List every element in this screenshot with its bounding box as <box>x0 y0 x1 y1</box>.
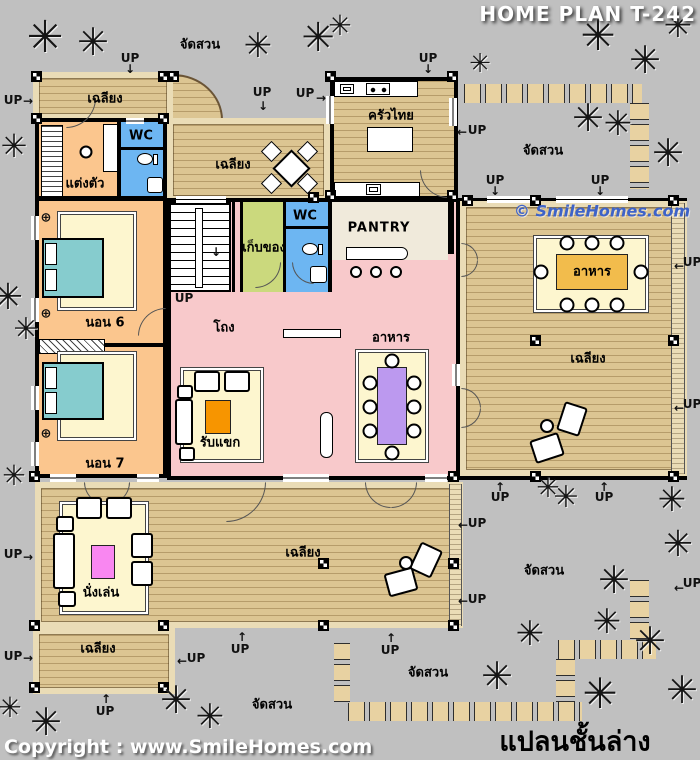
tree-icon: ✳ <box>553 483 578 513</box>
up-label: UP <box>4 649 23 663</box>
garden-label: จัดสวน <box>252 694 292 715</box>
up-label-stairs: UP <box>175 291 194 305</box>
up-label: UP <box>468 123 487 137</box>
tree-icon: ✳ <box>196 700 225 734</box>
up-arrow-icon: ← <box>458 519 468 531</box>
armchair <box>224 371 250 392</box>
dining-chair <box>407 400 422 415</box>
pantry-bar-counter <box>346 247 408 260</box>
up-label: UP <box>468 592 487 606</box>
window <box>452 364 460 386</box>
living-label: รับแขก <box>200 432 240 453</box>
tree-icon: ✳ <box>629 41 661 79</box>
paver-path-bottom <box>348 702 582 721</box>
tree-icon: ✳ <box>244 29 273 63</box>
paver-path-bottom-left <box>334 643 350 703</box>
column <box>29 620 40 631</box>
dining-chair <box>560 236 575 251</box>
bed-6-pillow <box>45 269 57 291</box>
window <box>283 474 329 482</box>
column <box>530 335 541 346</box>
tree-icon: ✳ <box>481 657 513 695</box>
column <box>325 71 336 82</box>
up-label: UP <box>96 704 115 718</box>
column <box>448 471 459 482</box>
ac-unit-icon: ⊕ <box>41 308 52 321</box>
up-arrow-icon: ↑ <box>495 481 505 493</box>
tree-icon: ✳ <box>634 622 666 660</box>
wall-stairs-right <box>232 202 235 292</box>
up-arrow-icon: ← <box>674 260 684 272</box>
up-label: UP <box>253 85 272 99</box>
tree-icon: ✳ <box>2 462 25 490</box>
bar-stool <box>370 266 382 278</box>
sofa-corner <box>179 447 195 461</box>
ac-unit-icon: ⊕ <box>41 212 52 225</box>
tree-icon: ✳ <box>469 51 491 77</box>
plan-title: HOME PLAN T-242 <box>479 2 696 26</box>
tree-icon: ✳ <box>572 99 604 137</box>
up-arrow-icon: → <box>23 551 33 563</box>
up-arrow-icon: ← <box>458 595 468 607</box>
stair-arrow-icon: ↓ <box>211 246 221 258</box>
tree-icon: ✳ <box>582 673 617 715</box>
garden-label: จัดสวน <box>180 34 220 55</box>
hall-pillar <box>320 412 333 458</box>
up-arrow-icon: ↑ <box>237 631 247 643</box>
watermark: © SmileHomes.com <box>514 202 690 221</box>
dining-chair <box>610 236 625 251</box>
dining-chair <box>634 265 649 280</box>
up-arrow-icon: ↓ <box>595 185 605 197</box>
toilet <box>302 243 318 255</box>
up-arrow-icon: ↓ <box>423 63 433 75</box>
kitchen-sink-icon <box>340 84 354 94</box>
column <box>447 190 458 201</box>
tree-icon: ✳ <box>27 16 64 60</box>
window <box>176 196 226 203</box>
bed-7-pillow <box>45 392 57 414</box>
up-arrow-icon: ← <box>177 655 187 667</box>
tree-icon: ✳ <box>0 694 22 722</box>
wall-pantry-right <box>448 202 454 254</box>
sofa-corner <box>177 385 193 399</box>
dining-chair <box>407 376 422 391</box>
column <box>448 558 459 569</box>
wall-dressing-bottom <box>35 196 167 201</box>
up-label: UP <box>381 643 400 657</box>
tree-icon: ✳ <box>516 617 545 651</box>
dining-chair <box>610 298 625 313</box>
tree-icon: ✳ <box>13 315 38 345</box>
up-arrow-icon: ← <box>674 582 684 594</box>
dining-outdoor-label: อาหาร <box>573 261 611 282</box>
toilet-tank <box>318 244 323 255</box>
up-arrow-icon: ↓ <box>125 63 135 75</box>
garden-label: จัดสวน <box>523 140 563 161</box>
porch-curve-corner <box>173 74 223 120</box>
column <box>318 620 329 631</box>
dressing-closet <box>41 125 63 197</box>
column <box>158 620 169 631</box>
pantry-label: PANTRY <box>348 221 411 236</box>
armchair <box>131 533 153 558</box>
deck-side-table <box>399 556 413 570</box>
window <box>31 216 39 240</box>
floor-plan-canvas: ↓ ⊕ <box>0 0 700 760</box>
bedroom6-label: นอน 6 <box>85 312 124 333</box>
dining-chair <box>585 236 600 251</box>
paver-path-top <box>464 84 642 103</box>
kitchen-island <box>367 127 413 152</box>
up-arrow-icon: ↑ <box>599 481 609 493</box>
tree-icon: ✳ <box>663 527 693 563</box>
porch-label: เฉลียง <box>215 154 250 175</box>
dining-indoor-label: อาหาร <box>372 327 410 348</box>
deck-side-table <box>540 419 554 433</box>
up-arrow-icon: → <box>316 92 326 104</box>
toilet <box>137 153 153 165</box>
up-label: UP <box>187 651 206 665</box>
ac-unit-icon: ⊕ <box>41 428 52 441</box>
tree-icon: ✳ <box>652 134 684 172</box>
window <box>425 474 447 482</box>
up-label: UP <box>231 642 250 656</box>
dining-chair <box>585 298 600 313</box>
dining-chair <box>363 424 378 439</box>
vanity-stool <box>80 146 93 159</box>
kitchen-label: ครัวไทย <box>368 105 414 126</box>
dressing-label: แต่งตัว <box>66 173 105 194</box>
up-arrow-icon: ↓ <box>258 100 268 112</box>
window <box>31 386 39 410</box>
column <box>448 620 459 631</box>
dining-chair <box>363 376 378 391</box>
column <box>308 192 319 203</box>
dining-chair <box>534 265 549 280</box>
tree-icon: ✳ <box>666 671 698 709</box>
column <box>325 190 336 201</box>
paver-path-right-3 <box>556 659 575 703</box>
bar-stool <box>350 266 362 278</box>
dining-chair <box>385 354 400 369</box>
bedroom7-label: นอน 7 <box>85 453 124 474</box>
sitting-label: นั่งเล่น <box>83 582 120 603</box>
up-arrow-icon: ↑ <box>386 632 396 644</box>
up-label: UP <box>683 397 700 411</box>
column <box>31 71 42 82</box>
armchair <box>131 561 153 586</box>
up-arrow-icon: ↑ <box>101 693 111 705</box>
column <box>29 471 40 482</box>
wall-wc1-divider <box>121 147 163 150</box>
dining-chair <box>407 424 422 439</box>
column <box>447 71 458 82</box>
window <box>449 98 457 126</box>
shower-tray <box>310 266 327 283</box>
bar-stool <box>390 266 402 278</box>
column <box>29 682 40 693</box>
tree-icon: ✳ <box>1 130 28 162</box>
wall-wc1-left <box>117 122 121 198</box>
window <box>126 118 144 124</box>
column <box>158 113 169 124</box>
living-coffee-table <box>205 400 231 434</box>
toilet-tank <box>153 154 158 165</box>
window <box>137 474 159 482</box>
dining-chair <box>363 400 378 415</box>
sofa-corner <box>56 516 74 532</box>
up-arrow-icon: → <box>23 95 33 107</box>
tree-icon: ✳ <box>604 107 633 141</box>
stair-rail <box>195 208 203 288</box>
porch-label: เฉลียง <box>80 638 115 659</box>
wc-label: WC <box>129 129 153 144</box>
kitchen-stove-icon <box>366 83 390 95</box>
up-label: UP <box>296 86 315 100</box>
column <box>31 113 42 124</box>
dining-indoor-table <box>377 367 407 445</box>
porch-label: เฉลียง <box>285 542 320 563</box>
up-arrow-icon: → <box>23 652 33 664</box>
sofa-corner <box>58 591 76 607</box>
tree-icon: ✳ <box>77 23 109 61</box>
dining-chair <box>385 446 400 461</box>
garden-label: จัดสวน <box>524 560 564 581</box>
tree-icon: ✳ <box>658 483 687 517</box>
storage-label: เก็บของ <box>242 237 286 258</box>
window <box>31 442 39 466</box>
tree-icon: ✳ <box>328 12 351 40</box>
dining-chair <box>560 298 575 313</box>
up-arrow-icon: ← <box>457 126 467 138</box>
porch-label: เฉลียง <box>570 348 605 369</box>
up-label: UP <box>683 576 700 590</box>
sitting-table <box>91 545 115 579</box>
up-label: UP <box>468 516 487 530</box>
garden-label: จัดสวน <box>408 662 448 683</box>
porch-label: เฉลียง <box>87 88 122 109</box>
wc-label: WC <box>293 209 317 224</box>
column <box>168 71 179 82</box>
window <box>50 474 76 482</box>
tree-icon: ✳ <box>593 605 622 639</box>
hall-label: โถง <box>213 317 234 338</box>
armchair <box>106 497 132 519</box>
hall-console-table <box>283 329 341 338</box>
up-arrow-icon: ← <box>674 402 684 414</box>
armchair <box>194 371 220 392</box>
sofa-left <box>175 399 193 445</box>
armchair <box>76 497 102 519</box>
tree-icon: ✳ <box>0 280 23 316</box>
wall-bedroom-divider <box>105 343 167 347</box>
bed-6-pillow <box>45 243 57 265</box>
tree-icon: ✳ <box>160 681 192 719</box>
window <box>326 96 334 124</box>
up-label: UP <box>683 255 700 269</box>
copyright-text: Copyright : www.SmileHomes.com <box>4 736 372 758</box>
tree-icon: ✳ <box>598 561 630 599</box>
up-arrow-icon: ↓ <box>490 185 500 197</box>
floor-caption: แปลนชั้นล่าง <box>499 720 650 760</box>
kitchen-sink2-icon <box>366 184 381 195</box>
up-label: UP <box>4 547 23 561</box>
column <box>668 335 679 346</box>
paver-path-top-right <box>630 103 649 189</box>
up-label: UP <box>4 93 23 107</box>
bed-7-pillow <box>45 367 57 389</box>
wall-wc2-divider <box>286 226 328 229</box>
column <box>462 195 473 206</box>
sofa-left <box>53 533 75 589</box>
shower-tray <box>147 177 163 193</box>
